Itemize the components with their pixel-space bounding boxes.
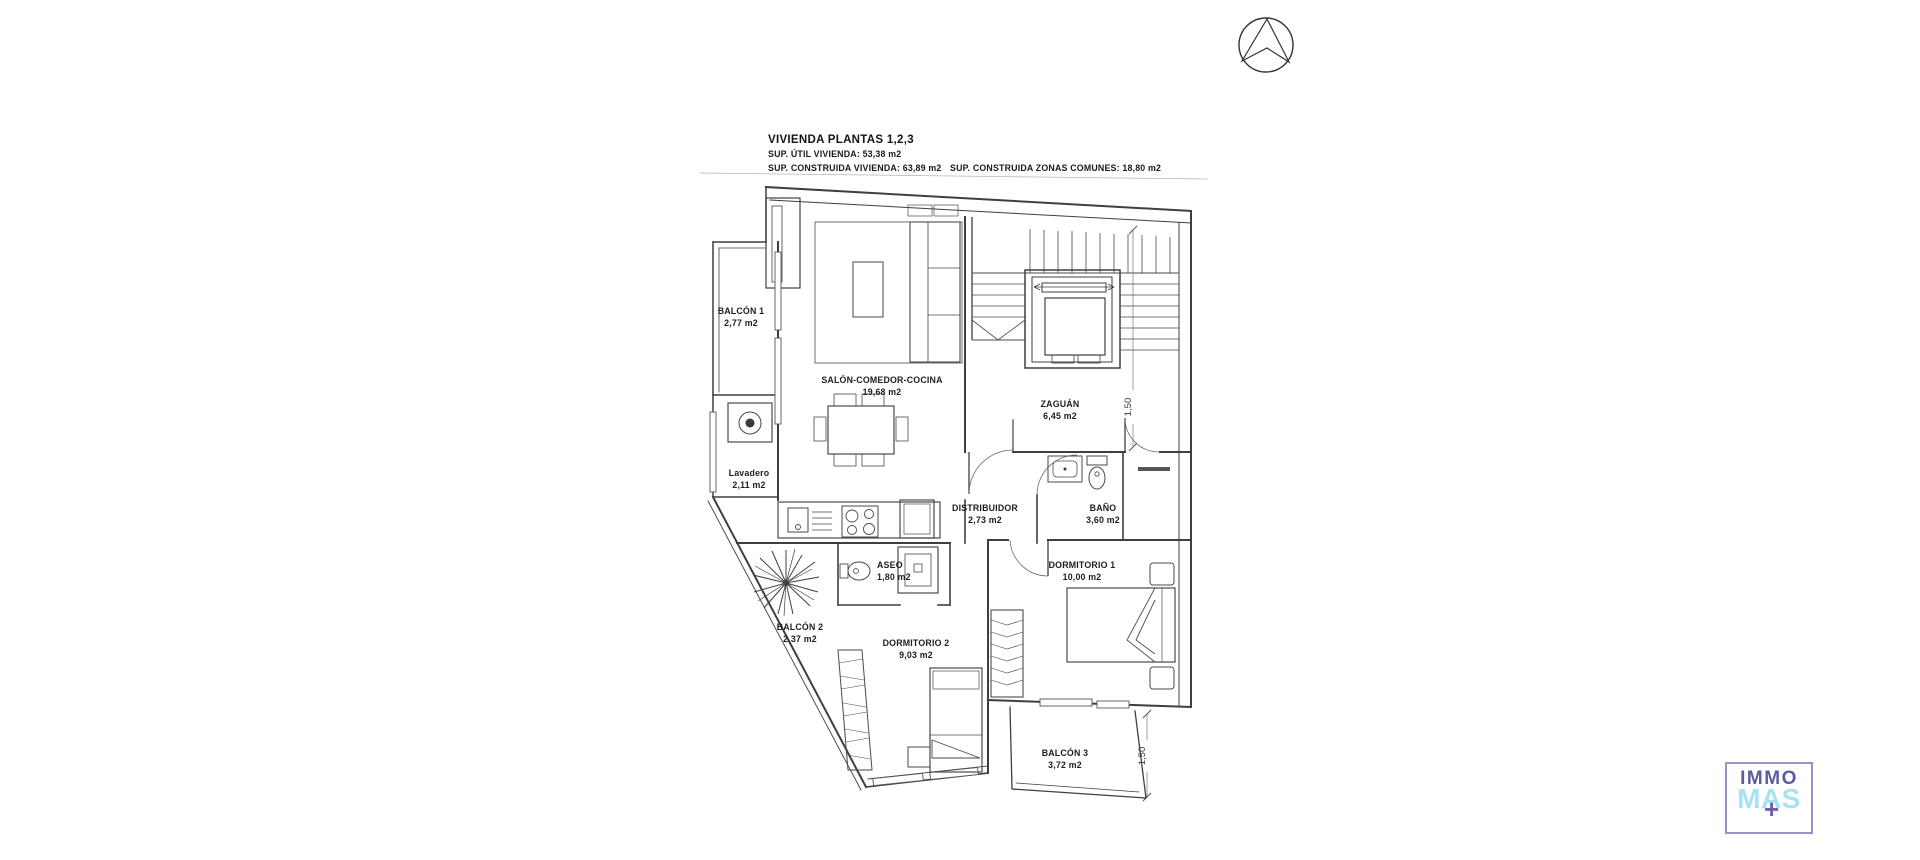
room-area-lavadero: 2,11 m2 xyxy=(732,480,765,490)
room-area-zaguan: 6,45 m2 xyxy=(1043,411,1077,421)
toilet-cistern xyxy=(1087,456,1107,465)
doors xyxy=(969,418,1159,576)
bano-fixtures xyxy=(1048,456,1170,489)
elevator xyxy=(1025,270,1120,368)
nightstand xyxy=(1150,563,1174,585)
kitchen-counter xyxy=(778,500,940,538)
washing-machine xyxy=(728,403,772,442)
room-area-balcon2: 2,37 m2 xyxy=(783,634,817,644)
coffee-table xyxy=(853,262,883,317)
room-area-dormitorio1: 10,00 m2 xyxy=(1063,572,1102,582)
floor-plan-drawing: VIVIENDA PLANTAS 1,2,3 SUP. ÚTIL VIVIEND… xyxy=(0,0,1920,860)
room-area-balcon1: 2,77 m2 xyxy=(724,318,758,328)
room-area-salon: 19,68 m2 xyxy=(863,387,902,397)
room-area-distribuidor: 2,73 m2 xyxy=(968,515,1002,525)
logo-plus-icon: + xyxy=(1764,794,1779,825)
nightstand xyxy=(1150,667,1174,689)
wardrobe-dorm2 xyxy=(838,650,872,770)
plan-sup-construida: SUP. CONSTRUIDA VIVIENDA: 63,89 m2 xyxy=(768,163,942,173)
dim-label-balcon3: 1,50 xyxy=(1137,747,1148,766)
bed-single xyxy=(908,668,982,772)
dining-table xyxy=(814,394,908,466)
room-label-aseo: ASEO xyxy=(877,560,903,570)
plan-sup-util: SUP. ÚTIL VIVIENDA: 53,38 m2 xyxy=(768,148,901,159)
room-label-lavadero: Lavadero xyxy=(729,468,770,478)
room-area-aseo: 1,80 m2 xyxy=(877,572,911,582)
room-label-balcon3: BALCÓN 3 xyxy=(1042,747,1089,758)
plan-title: VIVIENDA PLANTAS 1,2,3 xyxy=(768,134,914,146)
fridge xyxy=(900,500,934,538)
aseo-fixtures xyxy=(840,547,938,593)
wardrobe-dorm1 xyxy=(991,610,1023,697)
room-label-dormitorio2: DORMITORIO 2 xyxy=(883,638,950,648)
kitchen-sink xyxy=(788,508,808,532)
nightstand xyxy=(908,747,930,767)
plant xyxy=(753,549,819,616)
north-arrow-icon xyxy=(1239,18,1293,72)
dim-label-zaguan: 1,50 xyxy=(1123,398,1134,417)
title-block: VIVIENDA PLANTAS 1,2,3 SUP. ÚTIL VIVIEND… xyxy=(768,134,1161,173)
page: { "title_block": { "title": "VIVIENDA PL… xyxy=(0,0,1920,860)
plan-sup-comunes: SUP. CONSTRUIDA ZONAS COMUNES: 18,80 m2 xyxy=(950,163,1161,173)
room-label-salon: SALÓN-COMEDOR-COCINA xyxy=(821,374,943,385)
room-area-bano: 3,60 m2 xyxy=(1086,515,1120,525)
sofa xyxy=(815,205,962,363)
room-label-distribuidor: DISTRIBUIDOR xyxy=(952,503,1018,513)
room-area-dormitorio2: 9,03 m2 xyxy=(899,650,933,660)
room-label-dormitorio1: DORMITORIO 1 xyxy=(1049,560,1116,570)
immomas-logo: IMMO MAS + xyxy=(1725,762,1813,834)
room-label-balcon1: BALCÓN 1 xyxy=(718,305,765,316)
windows xyxy=(710,252,1129,786)
room-label-balcon2: BALCÓN 2 xyxy=(777,621,824,632)
room-label-zaguan: ZAGUÁN xyxy=(1041,399,1080,409)
room-label-bano: BAÑO xyxy=(1090,503,1117,513)
room-area-balcon3: 3,72 m2 xyxy=(1048,760,1082,770)
dimension-zaguan: 1,50 xyxy=(1123,226,1137,451)
toilet xyxy=(1089,467,1105,489)
